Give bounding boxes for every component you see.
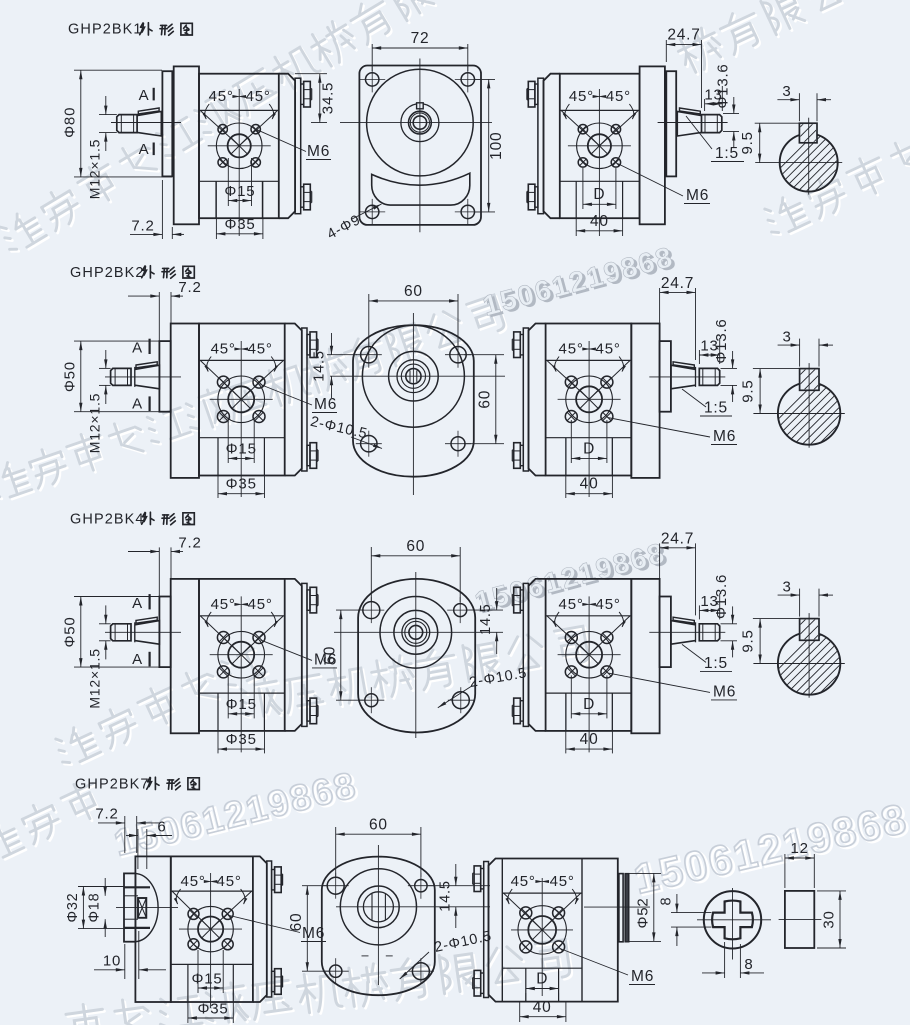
- svg-text:A: A: [132, 595, 143, 612]
- svg-text:45°: 45°: [246, 88, 271, 105]
- svg-text:A: A: [139, 141, 150, 158]
- svg-text:34.5: 34.5: [320, 82, 337, 114]
- svg-text:Φ35: Φ35: [226, 731, 257, 748]
- svg-text:40: 40: [580, 731, 599, 748]
- svg-text:Φ52: Φ52: [634, 897, 651, 928]
- svg-text:45°: 45°: [248, 596, 273, 613]
- svg-text:Φ35: Φ35: [197, 1001, 228, 1018]
- svg-text:Φ35: Φ35: [224, 216, 255, 233]
- svg-text:9.5: 9.5: [739, 131, 756, 154]
- svg-text:A: A: [139, 87, 150, 104]
- svg-text:Φ32: Φ32: [65, 892, 81, 922]
- svg-text:45°: 45°: [217, 873, 242, 890]
- svg-text:14.5: 14.5: [437, 880, 453, 911]
- svg-text:60: 60: [406, 538, 425, 555]
- svg-text:3: 3: [783, 329, 792, 346]
- svg-text:7.2: 7.2: [178, 279, 201, 296]
- svg-text:M6: M6: [631, 968, 654, 985]
- svg-text:40: 40: [580, 476, 599, 493]
- svg-text:8: 8: [744, 956, 753, 973]
- svg-text:10: 10: [103, 953, 121, 970]
- svg-text:45°: 45°: [248, 341, 273, 358]
- svg-text:Φ13.6: Φ13.6: [714, 63, 731, 108]
- svg-text:Φ18: Φ18: [87, 892, 103, 922]
- svg-text:3: 3: [782, 83, 791, 100]
- svg-text:M6: M6: [314, 396, 337, 413]
- svg-text:45°: 45°: [596, 596, 621, 613]
- svg-text:7.2: 7.2: [131, 218, 154, 235]
- svg-text:Φ15: Φ15: [226, 696, 257, 713]
- svg-text:A: A: [132, 396, 143, 413]
- svg-text:45°: 45°: [511, 873, 536, 890]
- svg-text:3: 3: [783, 579, 792, 596]
- svg-text:M6: M6: [307, 143, 330, 160]
- svg-text:D: D: [583, 696, 595, 713]
- svg-text:12: 12: [790, 840, 808, 857]
- svg-text:GHP2BK4: GHP2BK4: [70, 512, 145, 528]
- svg-text:Φ35: Φ35: [226, 476, 257, 493]
- svg-text:45°: 45°: [606, 88, 631, 105]
- svg-text:A: A: [132, 651, 143, 668]
- svg-text:6: 6: [157, 819, 166, 836]
- svg-text:M6: M6: [713, 683, 736, 700]
- svg-text:45°: 45°: [559, 341, 584, 358]
- svg-text:45°: 45°: [211, 341, 236, 358]
- svg-text:40: 40: [533, 999, 552, 1016]
- svg-text:14.5: 14.5: [478, 603, 494, 634]
- svg-text:45°: 45°: [559, 596, 584, 613]
- svg-text:60: 60: [404, 283, 423, 300]
- svg-text:M12×1.5: M12×1.5: [87, 139, 103, 199]
- svg-text:30: 30: [821, 910, 838, 928]
- svg-text:72: 72: [411, 30, 430, 47]
- svg-text:M12×1.5: M12×1.5: [87, 393, 103, 453]
- svg-text:GHP2BK2: GHP2BK2: [70, 265, 145, 281]
- svg-text:24.7: 24.7: [661, 530, 694, 547]
- svg-text:Φ80: Φ80: [62, 107, 79, 138]
- svg-text:1:5: 1:5: [704, 655, 728, 672]
- svg-text:24.7: 24.7: [661, 275, 694, 292]
- svg-text:45°: 45°: [181, 873, 206, 890]
- svg-text:40: 40: [590, 213, 609, 230]
- svg-text:7.2: 7.2: [178, 534, 201, 551]
- svg-text:100: 100: [488, 132, 505, 160]
- svg-text:M6: M6: [686, 187, 709, 204]
- svg-text:M6: M6: [713, 428, 736, 445]
- svg-text:Φ50: Φ50: [62, 361, 79, 392]
- svg-text:7.2: 7.2: [95, 806, 118, 823]
- svg-text:60: 60: [476, 390, 493, 409]
- svg-text:45°: 45°: [211, 596, 236, 613]
- svg-text:D: D: [536, 971, 548, 988]
- svg-text:1:5: 1:5: [704, 400, 728, 417]
- svg-text:Φ15: Φ15: [226, 440, 257, 457]
- svg-text:9.5: 9.5: [740, 629, 757, 652]
- svg-text:M12×1.5: M12×1.5: [87, 648, 103, 708]
- svg-text:Φ15: Φ15: [224, 183, 255, 200]
- svg-text:60: 60: [321, 646, 338, 665]
- svg-text:45°: 45°: [596, 341, 621, 358]
- svg-text:9.5: 9.5: [740, 379, 757, 402]
- svg-text:1:5: 1:5: [715, 145, 739, 162]
- svg-text:45°: 45°: [569, 88, 594, 105]
- svg-text:Φ50: Φ50: [62, 616, 79, 647]
- svg-text:60: 60: [288, 913, 305, 932]
- svg-text:D: D: [593, 186, 605, 203]
- svg-text:60: 60: [369, 817, 388, 834]
- svg-text:Φ15: Φ15: [191, 970, 222, 987]
- svg-text:Φ13.6: Φ13.6: [713, 318, 730, 363]
- svg-text:8: 8: [658, 897, 674, 906]
- svg-text:D: D: [583, 440, 595, 457]
- svg-text:Φ13.6: Φ13.6: [713, 574, 730, 619]
- svg-text:A: A: [132, 340, 143, 357]
- svg-text:24.7: 24.7: [667, 27, 700, 44]
- svg-text:GHP2BK1: GHP2BK1: [68, 22, 143, 38]
- svg-text:14.5: 14.5: [312, 350, 328, 381]
- svg-text:GHP2BK7: GHP2BK7: [75, 777, 150, 793]
- svg-text:45°: 45°: [209, 88, 234, 105]
- svg-text:45°: 45°: [550, 873, 575, 890]
